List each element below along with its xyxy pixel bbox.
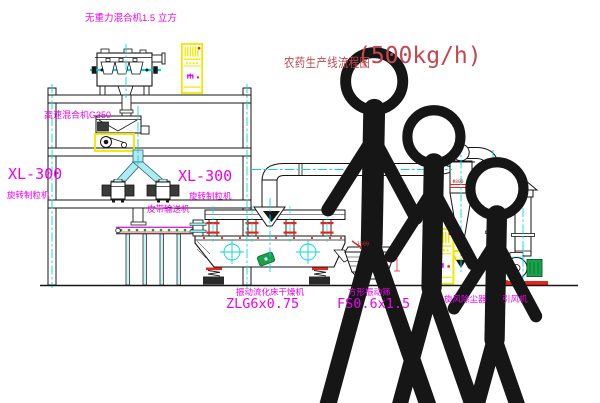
high-speed-mixer <box>95 116 149 151</box>
fan-label: 引风机 <box>502 295 528 304</box>
granulator-left-model-label: XL-300 <box>8 167 62 182</box>
belt-conveyor-label: 皮带输送机 <box>147 205 190 214</box>
fluid-bed-dryer <box>190 207 352 285</box>
gravity-mixer-label: 无重力混合机1.5 立方 <box>85 14 177 24</box>
granulator-right-model-label: XL-300 <box>178 169 232 184</box>
rotary-granulator-left <box>102 179 134 203</box>
process-flow-diagram-page: Φ800 1500 无重力混合机1.5 立方 农药生产线流程图 (500kg/h… <box>0 0 600 403</box>
granulator-left-name-label: 旋转制粒机 <box>7 191 50 200</box>
granulator-right-name-label: 旋转制粒机 <box>189 192 232 201</box>
diagram-title-capacity: (500kg/h) <box>357 45 482 68</box>
cyclone-label: 旋风除尘器 <box>444 295 487 304</box>
cyclone-diameter-dim: Φ800 <box>453 179 464 185</box>
rotary-granulator-right <box>147 179 179 203</box>
sieve-model-label: FS0.6x1.5 <box>337 298 410 312</box>
gravity-mixer <box>90 49 165 116</box>
control-cabinet-top <box>182 44 202 93</box>
belt-conveyor <box>116 208 197 285</box>
sieve-length-dim: 1500 <box>357 242 369 248</box>
dryer-model-label: ZLG6x0.75 <box>226 298 299 312</box>
high-speed-mixer-label: 高速混合机G350 <box>44 111 111 120</box>
